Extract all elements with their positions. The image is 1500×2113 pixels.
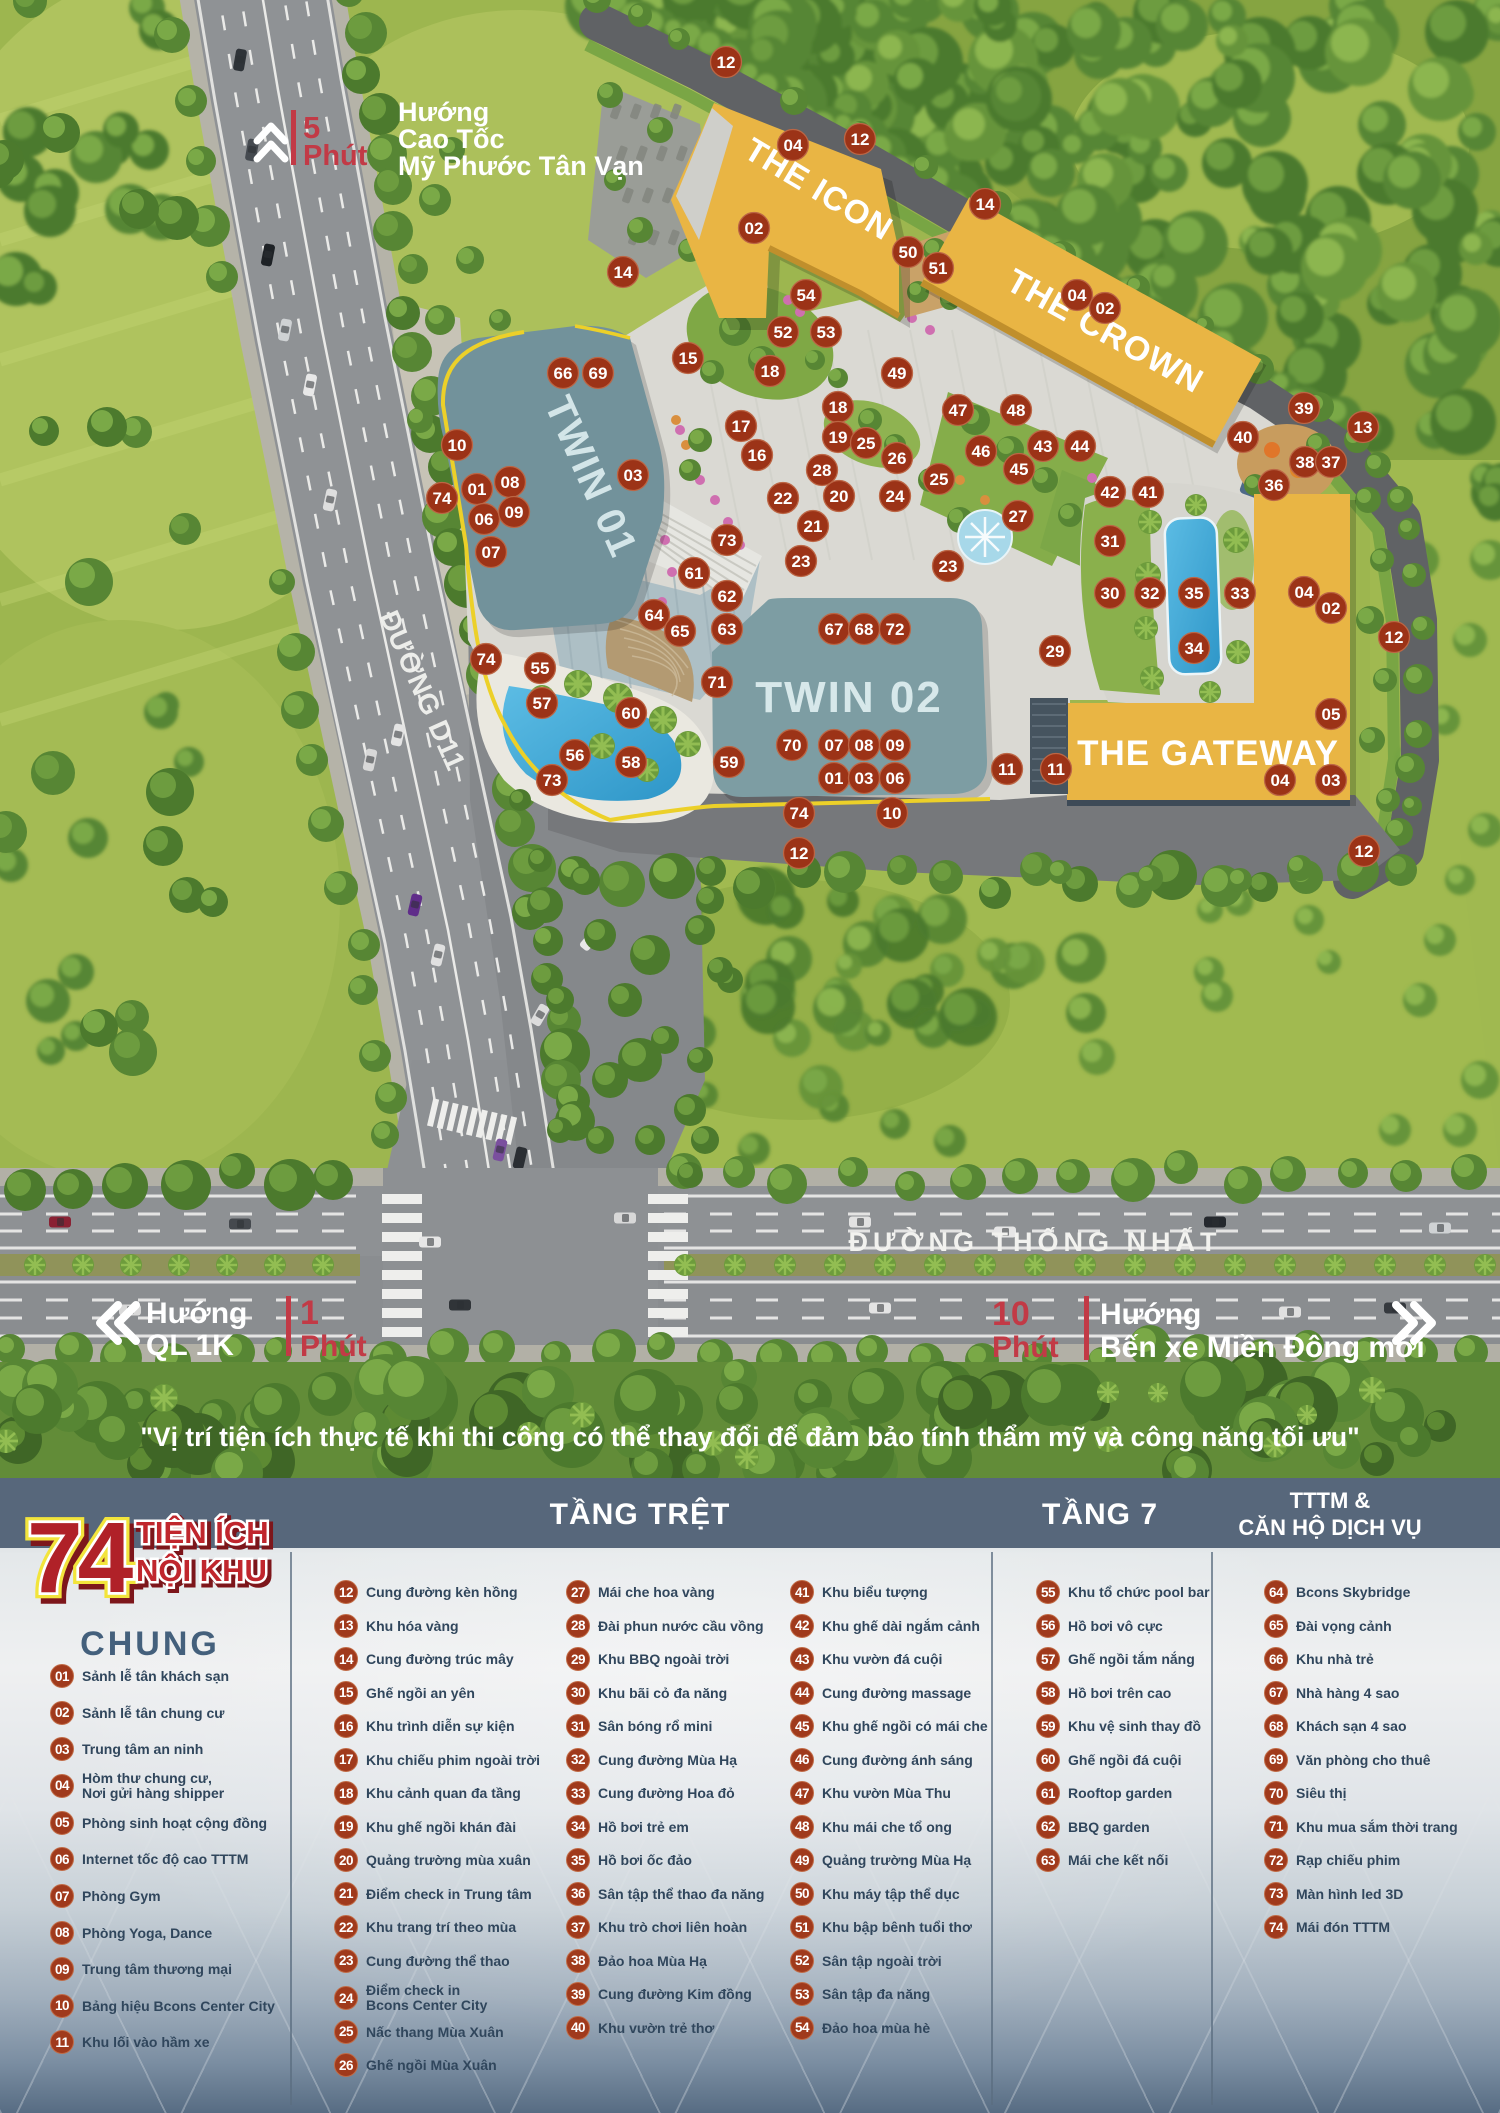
svg-text:34: 34 <box>1185 639 1204 658</box>
svg-text:ĐƯỜNG THỐNG NHẤT: ĐƯỜNG THỐNG NHẤT <box>849 1225 1222 1257</box>
svg-text:53: 53 <box>817 323 836 342</box>
svg-text:39: 39 <box>1295 399 1314 418</box>
svg-text:74: 74 <box>790 804 809 823</box>
svg-text:20: 20 <box>830 487 849 506</box>
svg-text:05: 05 <box>1322 705 1341 724</box>
svg-text:03: 03 <box>1322 771 1341 790</box>
svg-text:33: 33 <box>1231 584 1250 603</box>
svg-text:07: 07 <box>482 543 501 562</box>
svg-text:32: 32 <box>1141 584 1160 603</box>
svg-text:18: 18 <box>761 362 780 381</box>
svg-text:08: 08 <box>855 736 874 755</box>
svg-text:74: 74 <box>27 1502 134 1614</box>
svg-text:18: 18 <box>829 398 848 417</box>
svg-text:19: 19 <box>829 428 848 447</box>
svg-text:70: 70 <box>783 736 802 755</box>
svg-text:31: 31 <box>1101 532 1120 551</box>
svg-text:67: 67 <box>825 620 844 639</box>
svg-text:Hướng: Hướng <box>398 97 489 127</box>
svg-text:21: 21 <box>804 517 823 536</box>
svg-text:23: 23 <box>792 552 811 571</box>
svg-text:25: 25 <box>857 434 876 453</box>
svg-text:Phút: Phút <box>992 1331 1059 1364</box>
svg-text:14: 14 <box>614 263 633 282</box>
svg-text:55: 55 <box>531 659 550 678</box>
svg-text:58: 58 <box>622 753 641 772</box>
svg-text:QL 1K: QL 1K <box>146 1329 234 1362</box>
svg-text:65: 65 <box>671 622 690 641</box>
svg-text:27: 27 <box>1009 507 1028 526</box>
svg-text:16: 16 <box>748 446 767 465</box>
svg-text:Cao Tốc: Cao Tốc <box>398 124 505 154</box>
svg-text:57: 57 <box>533 694 552 713</box>
svg-text:15: 15 <box>679 349 698 368</box>
svg-text:68: 68 <box>855 620 874 639</box>
svg-text:Phút: Phút <box>303 140 368 172</box>
svg-text:47: 47 <box>949 401 968 420</box>
svg-text:12: 12 <box>1355 842 1374 861</box>
svg-text:44: 44 <box>1071 437 1090 456</box>
svg-text:11: 11 <box>998 760 1016 779</box>
svg-text:06: 06 <box>475 510 494 529</box>
svg-text:17: 17 <box>732 417 751 436</box>
svg-text:37: 37 <box>1322 453 1341 472</box>
svg-text:62: 62 <box>718 587 737 606</box>
svg-text:73: 73 <box>718 531 737 550</box>
svg-text:11: 11 <box>1047 760 1065 779</box>
svg-text:38: 38 <box>1296 453 1315 472</box>
svg-text:45: 45 <box>1010 460 1029 479</box>
svg-text:71: 71 <box>708 673 727 692</box>
svg-text:04: 04 <box>1068 286 1087 305</box>
svg-text:28: 28 <box>813 461 832 480</box>
svg-text:64: 64 <box>645 606 664 625</box>
svg-text:09: 09 <box>886 736 905 755</box>
svg-text:04: 04 <box>1271 771 1290 790</box>
svg-text:02: 02 <box>1096 299 1115 318</box>
svg-text:35: 35 <box>1185 584 1204 603</box>
svg-text:23: 23 <box>939 557 958 576</box>
svg-text:36: 36 <box>1265 476 1284 495</box>
svg-text:73: 73 <box>543 771 562 790</box>
svg-text:Bến xe Miền Đông mới: Bến xe Miền Đông mới <box>1100 1331 1425 1364</box>
svg-text:03: 03 <box>855 769 874 788</box>
svg-text:48: 48 <box>1007 401 1026 420</box>
svg-text:60: 60 <box>622 704 641 723</box>
svg-text:42: 42 <box>1101 483 1120 502</box>
svg-text:10: 10 <box>883 804 902 823</box>
svg-text:Hướng: Hướng <box>1100 1298 1201 1331</box>
svg-text:07: 07 <box>825 736 844 755</box>
svg-text:52: 52 <box>774 323 793 342</box>
svg-text:40: 40 <box>1234 428 1253 447</box>
svg-text:46: 46 <box>972 442 991 461</box>
svg-text:Phút: Phút <box>300 1330 367 1363</box>
svg-text:25: 25 <box>930 470 949 489</box>
svg-text:59: 59 <box>720 753 739 772</box>
svg-text:01: 01 <box>468 480 487 499</box>
svg-text:54: 54 <box>797 286 816 305</box>
svg-text:THE GATEWAY: THE GATEWAY <box>1077 734 1339 773</box>
svg-text:13: 13 <box>1354 418 1373 437</box>
svg-text:12: 12 <box>790 844 809 863</box>
svg-text:TWIN 02: TWIN 02 <box>755 673 943 722</box>
svg-text:43: 43 <box>1034 437 1053 456</box>
svg-text:02: 02 <box>745 219 764 238</box>
svg-text:01: 01 <box>825 769 844 788</box>
svg-text:10: 10 <box>992 1295 1030 1333</box>
svg-text:"Vị trí tiện ích thực tế khi t: "Vị trí tiện ích thực tế khi thi công có… <box>140 1422 1359 1452</box>
svg-text:04: 04 <box>784 136 803 155</box>
svg-text:74: 74 <box>433 489 452 508</box>
svg-text:22: 22 <box>774 489 793 508</box>
svg-text:09: 09 <box>505 503 524 522</box>
svg-text:63: 63 <box>718 620 737 639</box>
svg-text:Hướng: Hướng <box>146 1297 247 1330</box>
svg-text:10: 10 <box>448 436 467 455</box>
svg-text:12: 12 <box>1385 628 1404 647</box>
svg-text:12: 12 <box>717 53 736 72</box>
svg-text:61: 61 <box>685 564 704 583</box>
svg-text:08: 08 <box>501 473 520 492</box>
svg-text:NỘI KHU: NỘI KHU <box>136 1552 267 1588</box>
svg-text:30: 30 <box>1101 584 1120 603</box>
svg-text:29: 29 <box>1046 642 1065 661</box>
svg-text:06: 06 <box>886 769 905 788</box>
svg-text:26: 26 <box>888 449 907 468</box>
svg-text:Mỹ Phước Tân Vạn: Mỹ Phước Tân Vạn <box>398 151 644 181</box>
svg-text:66: 66 <box>554 364 573 383</box>
svg-text:49: 49 <box>888 364 907 383</box>
svg-text:03: 03 <box>624 466 643 485</box>
svg-text:41: 41 <box>1139 483 1158 502</box>
svg-text:04: 04 <box>1295 583 1314 602</box>
svg-text:51: 51 <box>929 259 948 278</box>
svg-text:50: 50 <box>899 243 918 262</box>
svg-text:TIỆN ÍCH: TIỆN ÍCH <box>136 1514 269 1550</box>
svg-text:72: 72 <box>886 620 905 639</box>
svg-text:69: 69 <box>589 364 608 383</box>
svg-text:02: 02 <box>1322 599 1341 618</box>
svg-text:14: 14 <box>976 195 995 214</box>
svg-text:24: 24 <box>886 487 905 506</box>
svg-text:56: 56 <box>566 746 585 765</box>
svg-text:74: 74 <box>477 650 496 669</box>
svg-text:12: 12 <box>851 130 870 149</box>
svg-text:1: 1 <box>300 1294 319 1332</box>
